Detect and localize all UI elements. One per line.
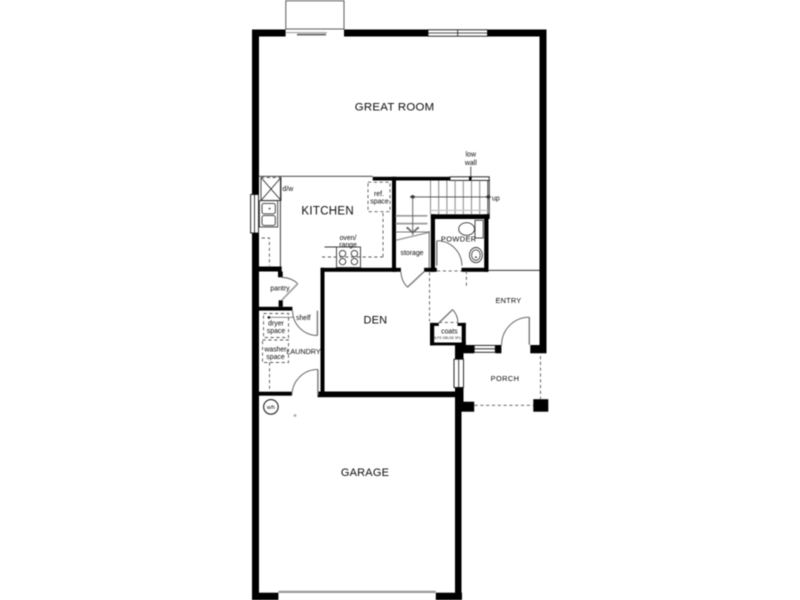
- svg-text:POWDER: POWDER: [441, 235, 477, 244]
- svg-text:GREAT ROOM: GREAT ROOM: [355, 102, 435, 114]
- svg-text:wall: wall: [464, 160, 477, 167]
- svg-text:w/h: w/h: [267, 405, 275, 411]
- svg-text:dryer: dryer: [268, 321, 284, 328]
- svg-text:KITCHEN: KITCHEN: [301, 205, 354, 217]
- svg-text:up: up: [492, 195, 500, 202]
- svg-text:ref.: ref.: [374, 191, 384, 198]
- svg-text:storage: storage: [401, 250, 424, 257]
- svg-text:ENTRY: ENTRY: [495, 296, 521, 305]
- svg-text:PORCH: PORCH: [491, 374, 520, 383]
- svg-text:space: space: [266, 354, 285, 361]
- svg-text:LAUNDRY: LAUNDRY: [286, 347, 320, 356]
- svg-text:GARAGE: GARAGE: [341, 467, 389, 479]
- svg-text:pantry: pantry: [270, 286, 290, 293]
- svg-text:washer: washer: [263, 347, 287, 354]
- svg-text:DEN: DEN: [363, 315, 387, 327]
- svg-text:low: low: [466, 152, 476, 159]
- svg-text:space: space: [267, 328, 286, 335]
- svg-text:shelf: shelf: [296, 315, 311, 322]
- svg-text:d/w: d/w: [283, 186, 294, 193]
- svg-text:range: range: [339, 242, 357, 249]
- svg-text:space: space: [370, 199, 389, 206]
- svg-text:SHLFS SBLSE 9FL2S: SHLFS SBLSE 9FL2S: [430, 336, 465, 340]
- svg-text:coats: coats: [441, 328, 458, 335]
